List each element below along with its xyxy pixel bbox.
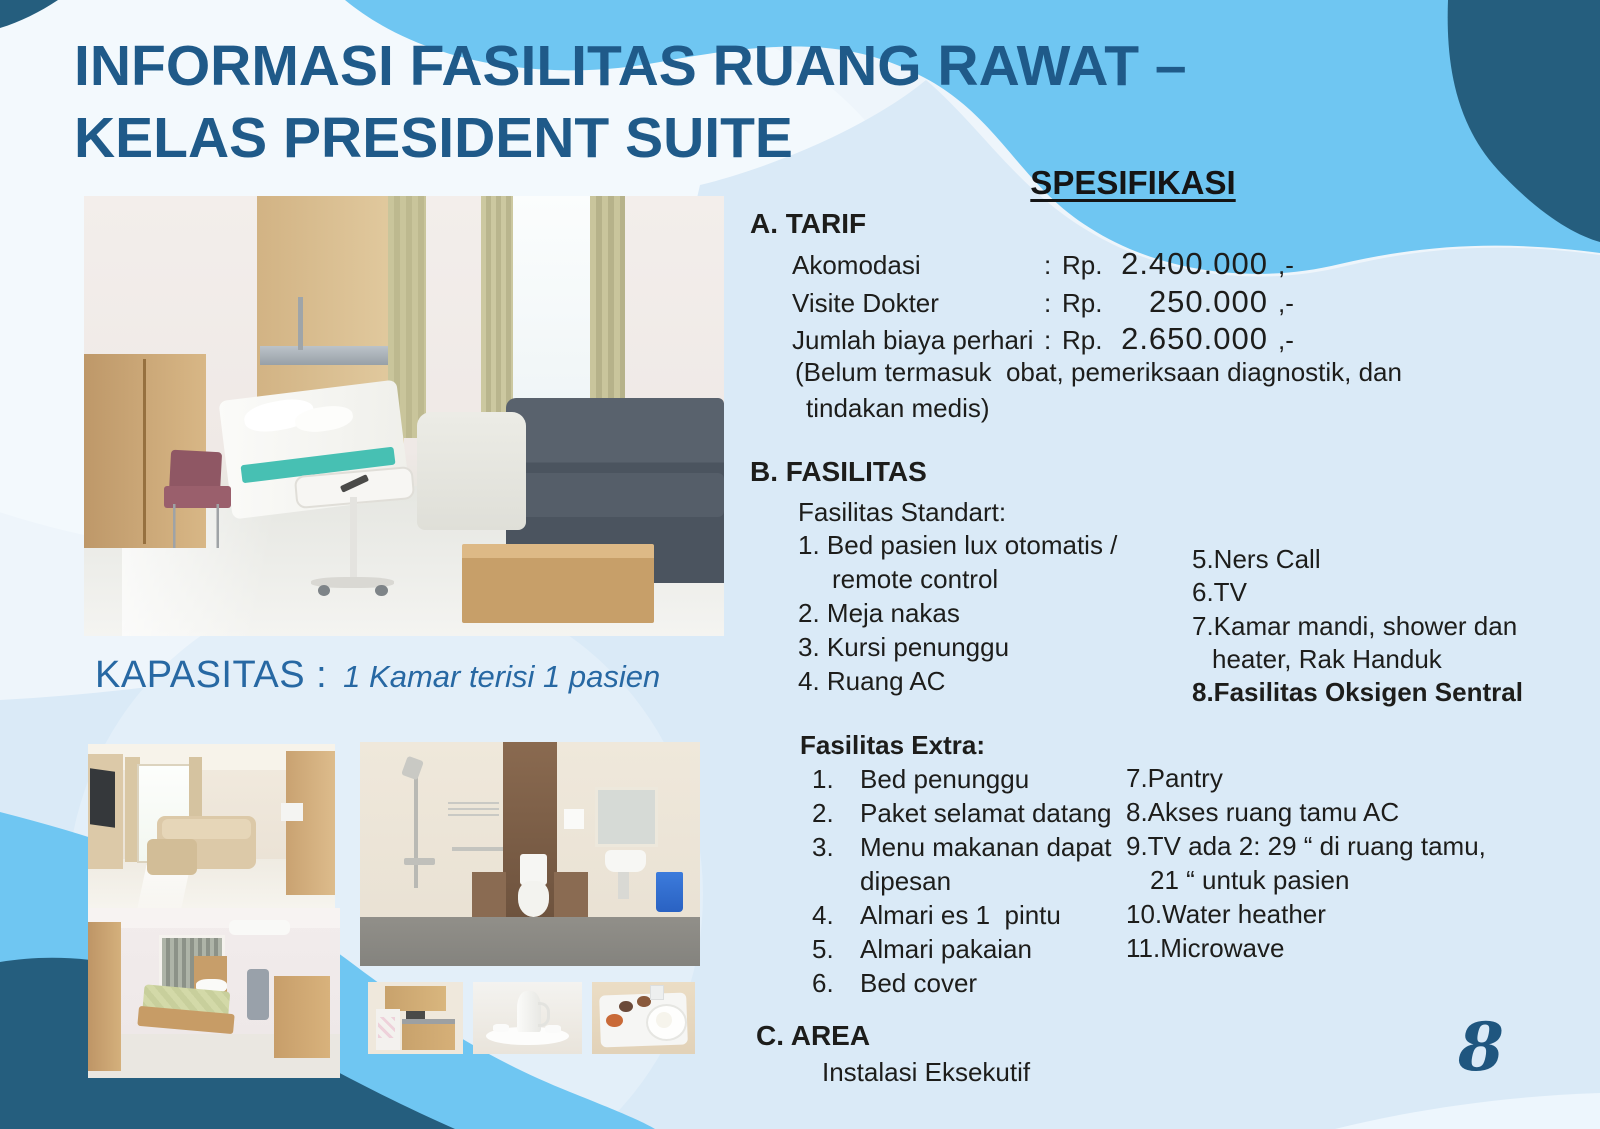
tarif-colon: : (1044, 288, 1062, 319)
bath-marble-panel-left (472, 872, 506, 917)
extra-item-text: Paket selamat datang (860, 798, 1112, 829)
page-title-line1: INFORMASI FASILITAS RUANG RAWAT – (74, 30, 1324, 102)
tarif-heading: A. TARIF (750, 208, 866, 239)
extra-item-text: Bed cover (860, 968, 977, 999)
extra-item-text: Bed penunggu (860, 764, 1029, 795)
pantry-microwave (406, 1011, 425, 1020)
photo-armchair (417, 412, 526, 531)
extra-item-number: 6. (812, 968, 860, 999)
area-value: Instalasi Eksekutif (822, 1058, 1030, 1087)
welcome-drink-photo (473, 982, 582, 1054)
tarif-row-akomodasi: Akomodasi : Rp. 2.400.000 ,- (792, 246, 1294, 282)
bath-dispenser (564, 809, 584, 829)
extra-item-number: 5. (812, 934, 860, 965)
page-title: INFORMASI FASILITAS RUANG RAWAT – KELAS … (74, 30, 1324, 174)
extra-item-3-wrap: dipesan (812, 866, 951, 897)
extra-item-text: dipesan (860, 866, 951, 897)
living-cabinets (286, 751, 335, 895)
fasilitas-extra-label: Fasilitas Extra: (800, 731, 985, 760)
standart-item-7: 7.Kamar mandi, shower dan (1192, 612, 1517, 641)
tarif-note-line1: (Belum termasuk obat, pemeriksaan diagno… (795, 358, 1445, 387)
extra-item-2: 2. Paket selamat datang (812, 798, 1112, 829)
bedroom-wardrobe (88, 922, 121, 1072)
extra-item-5: 5. Almari pakaian (812, 934, 1032, 965)
standart-item-4: 4. Ruang AC (798, 667, 945, 696)
pantry-fridge-floral (378, 1017, 395, 1039)
pantry-photo (368, 982, 463, 1054)
extra-item-10: 10.Water heather (1126, 900, 1326, 929)
area-heading: C. AREA (756, 1020, 870, 1051)
bedroom-cabinet (274, 976, 329, 1058)
meal-tray-photo (592, 982, 695, 1054)
photo-chair-legs (167, 504, 225, 548)
tarif-suffix: ,- (1278, 325, 1294, 356)
tarif-label: Akomodasi (792, 250, 1044, 281)
extra-item-number: 3. (812, 832, 860, 863)
fasilitas-heading: B. FASILITAS (750, 456, 927, 487)
kapasitas-label: KAPASITAS : (95, 654, 327, 697)
standart-item-5: 5.Ners Call (1192, 545, 1321, 574)
bathroom-photo (360, 742, 700, 966)
standart-item-6: 6.TV (1192, 578, 1247, 607)
kapasitas-value: 1 Kamar terisi 1 pasien (343, 659, 660, 695)
extra-item-3: 3. Menu makanan dapat (812, 832, 1112, 863)
extra-item-text: Almari pakaian (860, 934, 1032, 965)
living-room-photo (88, 744, 335, 908)
extra-item-6: 6. Bed cover (812, 968, 977, 999)
tarif-label: Jumlah biaya perhari (792, 325, 1044, 356)
tarif-colon: : (1044, 250, 1062, 281)
living-tv (90, 768, 115, 827)
standart-item-8: 8.Fasilitas Oksigen Sentral (1192, 678, 1523, 707)
bath-shower-mixer (404, 858, 435, 865)
living-microwave (281, 803, 303, 821)
extra-item-text: Menu makanan dapat (860, 832, 1112, 863)
extra-item-number: 4. (812, 900, 860, 931)
spesifikasi-heading: SPESIFIKASI (1030, 164, 1235, 202)
extra-item-text: Almari es 1 pintu (860, 900, 1061, 931)
bedroom-ceiling (88, 908, 340, 928)
bath-grab-bar (452, 847, 503, 851)
kapasitas-line: KAPASITAS : 1 Kamar terisi 1 pasien (95, 654, 660, 697)
slide: INFORMASI FASILITAS RUANG RAWAT – KELAS … (0, 0, 1600, 1129)
tarif-currency: Rp. (1062, 288, 1118, 319)
pantry-lower-cabinet (402, 1024, 455, 1050)
bath-shower-hose (414, 764, 418, 887)
main-room-photo (84, 196, 724, 636)
extra-item-1: 1. Bed penunggu (812, 764, 1029, 795)
tarif-amount: 2.650.000 (1118, 321, 1268, 357)
extra-item-4: 4. Almari es 1 pintu (812, 900, 1061, 931)
photo-wardrobe-door-gap (143, 359, 146, 544)
bedroom-chair (247, 969, 270, 1020)
tarif-amount: 250.000 (1118, 284, 1268, 320)
bath-marble-panel-right (554, 872, 588, 917)
bath-sink-pipe (618, 872, 628, 899)
bath-blue-bin (656, 872, 683, 912)
photo-sofa-seat (513, 473, 724, 517)
extra-item-11: 11.Microwave (1126, 934, 1284, 963)
extra-item-8: 8.Akses ruang tamu AC (1126, 798, 1399, 827)
extra-item-number: 1. (812, 764, 860, 795)
bath-sink (605, 850, 646, 872)
page-number: 8 (1458, 1008, 1504, 1086)
extra-item-7: 7.Pantry (1126, 764, 1223, 793)
tarif-amount: 2.400.000 (1118, 246, 1268, 282)
tarif-row-visite-dokter: Visite Dokter : Rp. 250.000 ,- (792, 284, 1294, 320)
bath-toilet-bowl (518, 881, 549, 917)
extra-item-9: 9.TV ada 2: 29 “ di ruang tamu, (1126, 832, 1486, 861)
bedroom-ac-unit (229, 920, 289, 935)
living-chaise (147, 839, 196, 875)
kettle-thermos (517, 991, 541, 1033)
standart-item-1: 1. Bed pasien lux otomatis / (798, 531, 1117, 560)
standart-item-1-wrap: remote control (832, 565, 998, 594)
standart-item-7-wrap: heater, Rak Handuk (1212, 645, 1442, 674)
fasilitas-standart-label: Fasilitas Standart: (798, 498, 1006, 527)
standart-item-2: 2. Meja nakas (798, 599, 960, 628)
tarif-currency: Rp. (1062, 325, 1118, 356)
extra-item-9-wrap: 21 “ untuk pasien (1150, 866, 1349, 895)
food-glass (650, 985, 664, 1000)
tarif-note-line2: tindakan medis) (806, 394, 990, 423)
standart-item-3: 3. Kursi penunggu (798, 633, 1009, 662)
living-sofa-cushion (162, 819, 251, 839)
tarif-label: Visite Dokter (792, 288, 1044, 319)
tarif-suffix: ,- (1278, 250, 1294, 281)
kettle-cup-left (493, 1024, 509, 1032)
extra-item-number: 2. (812, 798, 860, 829)
bath-mirror (595, 787, 659, 847)
photo-table-pole (350, 497, 357, 581)
food-bowl-vegetable (606, 1014, 622, 1027)
tarif-row-jumlah-perhari: Jumlah biaya perhari : Rp. 2.650.000 ,- (792, 321, 1294, 357)
bath-floor (360, 917, 700, 966)
photo-coffee-table (462, 544, 654, 623)
tarif-colon: : (1044, 325, 1062, 356)
photo-iv-pole (298, 297, 302, 350)
tarif-suffix: ,- (1278, 288, 1294, 319)
bath-towel-rack (448, 802, 499, 820)
companion-bedroom-photo (88, 908, 340, 1078)
kettle-cup-right (545, 1025, 561, 1033)
food-bowl-soup (637, 996, 650, 1007)
pantry-upper-cabinets (385, 986, 446, 1010)
tarif-currency: Rp. (1062, 250, 1118, 281)
